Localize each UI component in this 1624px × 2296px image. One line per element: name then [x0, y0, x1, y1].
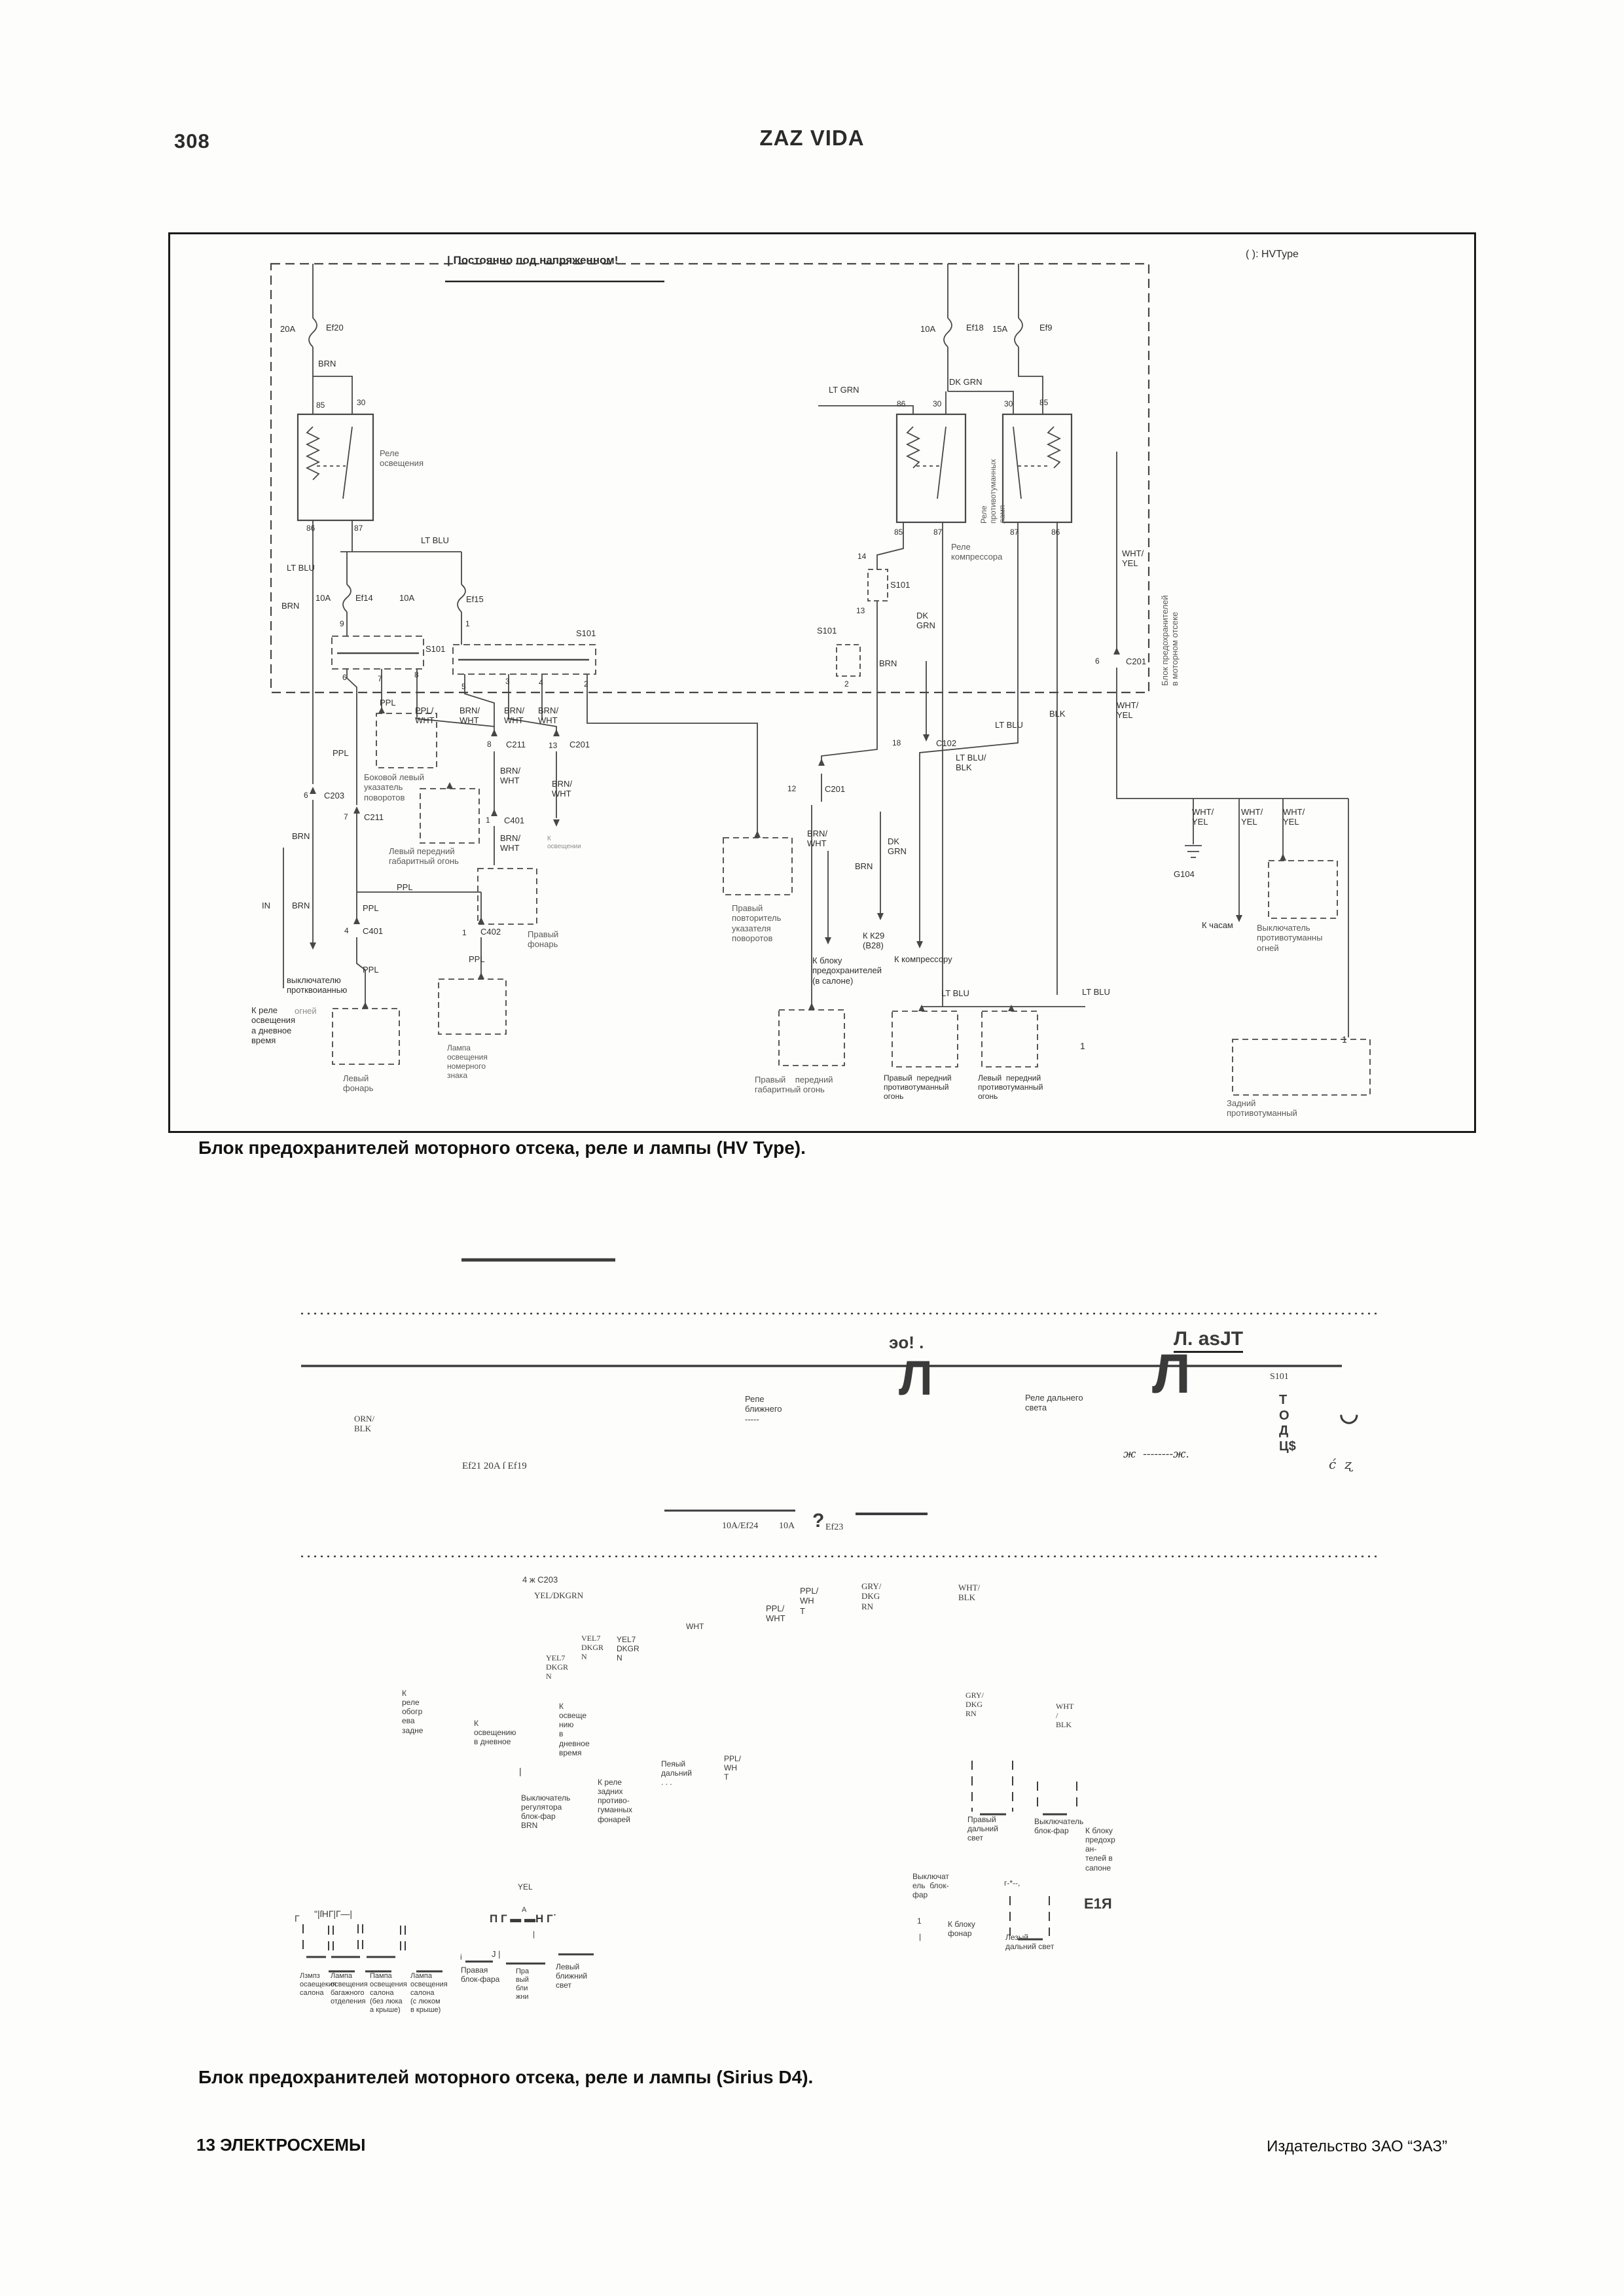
diagram1-label: 87 [933, 528, 942, 537]
diagram1-label: LT BLU [1082, 987, 1110, 997]
diagram1-label: 12 [787, 784, 796, 793]
diagram2-label: GRY/ DKG RN [965, 1691, 984, 1718]
diagram1-label: 7 [344, 812, 348, 821]
diagram2-label: YEL7 DKGR N [617, 1635, 640, 1662]
diagram1-label: К реле освещения а дневное время [251, 1005, 295, 1045]
diagram2-label: Выключат ель блок- фар [912, 1872, 949, 1899]
diagram1-label: LT BLU [995, 720, 1023, 730]
diagram1-label: выключателю протквоианнью [287, 975, 347, 996]
diagram2-label: 1 [917, 1916, 922, 1926]
diagram1-label: 30 [357, 398, 365, 407]
diagram1-label: 1 [1342, 1034, 1347, 1045]
diagram1-label: DK GRN [916, 611, 935, 631]
diagram1-label: 86 [306, 524, 315, 533]
diagram2-label: К реле задних противо- гуманных фонарей [598, 1778, 632, 1824]
diagram2-label: П Г ▬ ▬Н Г˙ [490, 1912, 556, 1926]
diagram2-label: WHT/ BLK [958, 1583, 980, 1603]
diagram1-label: C203 [324, 791, 344, 800]
diagram2-label: Л [1152, 1342, 1191, 1407]
diagram1-label: Ef20 [326, 323, 344, 332]
diagram1-label: 1 [486, 816, 490, 825]
footer-section: 13 ЭЛЕКТРОСХЕМЫ [196, 2135, 365, 2155]
diagram1-label: S101 [817, 626, 837, 636]
diagram1-label: 6 [1095, 656, 1100, 666]
diagram1-label: 3 [505, 677, 510, 686]
diagram1-label: WHT/ YEL [1241, 807, 1263, 827]
diagram2-label: 10A/Ef24 [722, 1521, 758, 1532]
diagram1-label: Выключатель противотуманны огней [1257, 923, 1322, 953]
diagram1-label: C401 [504, 816, 524, 825]
diagram1-label: Ef15 [466, 594, 484, 604]
diagram1-label: 1 [1080, 1041, 1085, 1052]
diagram2-label: К блоку фонар [948, 1920, 975, 1938]
diagram1-label: К компрессору [894, 954, 952, 964]
diagram1-label: 8 [414, 670, 419, 679]
diagram1-label: 85 [316, 401, 325, 410]
diagram1-label: BRN/ WHT [504, 706, 524, 726]
diagram1-label: BRN [855, 861, 873, 871]
diagram1-label: 4 [344, 926, 349, 935]
diagram2-label: Т О Д Ц$ [1279, 1393, 1296, 1454]
diagram1-label: 20A [280, 324, 295, 334]
diagram1-label: C211 [364, 812, 384, 822]
diagram1-label: C201 [569, 740, 590, 749]
diagram1-label: Правый передний противотуманный огонь [884, 1073, 952, 1101]
diagram1-label: Реле компрессора [951, 542, 1002, 562]
diagram2-label: Левый ближний свет [556, 1962, 587, 1990]
diagram1-label: LT GRN [829, 385, 859, 395]
diagram2-label: GRY/ DKG RN [861, 1581, 881, 1611]
diagram1-label: C102 [936, 738, 956, 748]
diagram1-label: 2 [584, 679, 588, 689]
diagram1-label: BRN/ WHT [538, 706, 558, 726]
diagram1-label: BLK [1049, 709, 1066, 719]
diagram1-label: C402 [480, 927, 501, 937]
diagram2-label: ORN/ BLK [354, 1414, 374, 1434]
diagram1-label: 13 [549, 741, 557, 750]
diagram1-label: Лампа освещения номерного знака [447, 1043, 488, 1081]
diagram2-label: Правая блок-фара [461, 1965, 499, 1984]
diagram2-label: WHT / BLK [1056, 1702, 1074, 1729]
diagram2-label: Реле дальнего света [1025, 1393, 1083, 1413]
diagram2-label: К блоку предохр ан- телей в сапоне [1085, 1826, 1115, 1873]
diagram1-label: 30 [933, 399, 941, 408]
diagram1-label: Боковой левый указатель поворотов [364, 772, 424, 802]
footer-publisher: Издательство ЗАО “ЗАЗ” [1267, 2138, 1447, 2156]
diagram2-label: PPL/ WHT [766, 1604, 785, 1624]
diagram1-label: 30 [1004, 399, 1013, 408]
diagram1-caption: Блок предохранителей моторного отсека, р… [198, 1138, 806, 1158]
diagram2-label: VEL7 DKGR N [581, 1634, 604, 1661]
diagram1-label: DK GRN [949, 377, 983, 387]
diagram2-label: PPL/ WH Т [800, 1586, 818, 1616]
diagram2-label: Лампа освещения багажного отделения [331, 1972, 368, 2006]
diagram1-label: DK GRN [888, 836, 907, 857]
diagram2-label: S101 [1270, 1372, 1289, 1383]
diagram1-label: Ef18 [966, 323, 984, 332]
diagram2-label: Пампа освещения салона (без люка а крыше… [370, 1972, 407, 2015]
diagram2-label: г-*--, [1004, 1878, 1020, 1888]
diagram1-label: 86 [1051, 528, 1060, 537]
diagram2-label: ? [812, 1509, 824, 1532]
diagram1-label: PPL [333, 748, 349, 758]
diagram1-label: 10A [920, 324, 935, 334]
diagram2-label: Выключатель регулятора блок-фар BRN [521, 1793, 570, 1831]
diagram2-label: YEL7 DKGR N [546, 1653, 568, 1681]
diagram1-label: Ef14 [355, 593, 373, 603]
diagram1-label: Правый передний габаритный огонь [755, 1075, 833, 1095]
diagram1-label: 1 [462, 928, 467, 937]
diagram2-label: YEL [518, 1882, 533, 1892]
diagram1-label: BRN [318, 359, 336, 368]
diagram2-label: ◡ [1339, 1401, 1359, 1427]
diagram1-label: BRN [292, 901, 310, 910]
diagram1-label: 1 [465, 619, 470, 628]
diagram1-label: 13 [856, 606, 865, 615]
diagram2-label: ć ʐ [1329, 1457, 1352, 1473]
diagram2-label: К освещению в дневное [474, 1719, 516, 1746]
diagram2-label: | [519, 1766, 522, 1777]
diagram1-label: 85 [1039, 398, 1048, 407]
diagram2-label: Выключатель блок-фар [1034, 1817, 1083, 1835]
diagram1-label: WHT/ YEL [1122, 548, 1144, 569]
diagram1-label: К блоку предохранителей (в салоне) [812, 956, 882, 986]
diagram1-label: 18 [892, 738, 901, 747]
diagram1-label: К часам [1202, 920, 1233, 930]
diagram1-label: BRN/ WHT [552, 779, 572, 799]
diagram1-label: PPL [397, 882, 413, 892]
diagram2-label: Репе ближнего ----- [745, 1394, 782, 1424]
diagram1-label: 9 [340, 619, 344, 628]
diagram1-label: 10A [399, 593, 414, 603]
diagram1-label: G104 [1174, 869, 1195, 879]
diagram1-label: C401 [363, 926, 383, 936]
diagram2-label: Лезый дальний свет [1005, 1933, 1054, 1951]
diagram2-label: К реле обогр ева задне [402, 1689, 423, 1735]
diagram1-label: Реле противотуманных ламп [979, 459, 1007, 524]
diagram1-label: огней [295, 1006, 317, 1016]
diagram2-label: 4 ж С203 [522, 1575, 558, 1585]
diagram1-label: LT BLU [287, 563, 315, 573]
diagram1-label: 6 [342, 673, 347, 682]
diagram1-label: 5 [461, 682, 466, 691]
diagram1-label: PPL [363, 965, 379, 975]
diagram1-label: C201 [825, 784, 845, 794]
diagram1-label: BRN/ WHT [460, 706, 480, 726]
diagram1-label: Правый фонарь [528, 929, 558, 950]
diagram1-label: PPL [469, 954, 485, 964]
diagram1-label: WHT/ YEL [1117, 700, 1138, 721]
diagram2-label: Пеяый дальний . . . [661, 1759, 692, 1787]
diagram1-label: 7 [378, 674, 382, 683]
diagram1-label: Левый передний противотуманный огонь [978, 1073, 1043, 1101]
diagram1-label: 86 [897, 399, 905, 408]
diagram2-label: Ef23 [825, 1522, 843, 1534]
diagram1-label: Реле освещения [380, 448, 424, 469]
diagram2-label: PPL/ WH Т [724, 1754, 741, 1782]
diagram1-label: BRN [292, 831, 310, 841]
diagram1-label: 2 [844, 679, 849, 689]
diagram1-label: 8 [487, 740, 492, 749]
diagram1-label: BRN/ WHT [500, 833, 520, 853]
diagram1-label: BRN/ WHT [500, 766, 520, 786]
diagram2-label: YEL/DKGRN [534, 1590, 583, 1600]
diagram2-label: WHT [686, 1622, 704, 1631]
diagram1-label: Задний противотуманный [1227, 1098, 1297, 1119]
diagram1-label: S101 [425, 644, 445, 654]
diagram1-label: WHT/ YEL [1283, 807, 1305, 827]
diagram1-label: PPL [380, 698, 396, 708]
diagram1-label: Левый фонарь [343, 1073, 373, 1094]
diagram2-label: Лампа освещения салона (с люком в крыше) [410, 1972, 448, 2015]
diagram2-label: Г [295, 1913, 300, 1924]
diagram1-label: S101 [890, 580, 910, 590]
diagram1-label: WHT/ YEL [1192, 807, 1214, 827]
diagram2-label: Ef21 20A ſ Ef19 [462, 1461, 527, 1473]
diagram1-label: BRN [879, 658, 897, 668]
diagram1-label: LT BLU [941, 988, 969, 998]
diagram2-label: К освеще нию в дневное время [559, 1702, 590, 1757]
diagram1-label: Ef9 [1039, 323, 1053, 332]
diagram2-label: Л [899, 1350, 933, 1407]
diagram2-label: 10A [779, 1521, 795, 1532]
diagram1-label: LT BLU [421, 535, 449, 545]
diagram1-label: 10A [316, 593, 331, 603]
diagram1-frame [168, 232, 1476, 1133]
diagram1-label: Левый передний габаритный огонь [389, 846, 459, 867]
diagram1-label: К К29 (В28) [863, 931, 884, 951]
diagram1-label: Блок предохранителей в моторном отсеке [1160, 595, 1180, 686]
diagram1-label: S101 [576, 628, 596, 638]
manual-page: 308 ZAZ VIDA [0, 0, 1624, 2296]
diagram2-label: Пра вый бли жни [516, 1967, 529, 2001]
diagram1-label: C201 [1126, 656, 1146, 666]
diagram1-label: 85 [894, 528, 903, 537]
diagram1-label: Правый повторитель указателя поворотов [732, 903, 781, 943]
diagram1-label: PPL [363, 903, 379, 913]
diagram1-label: | Постоянно под напряженном! [447, 254, 618, 267]
diagram2-label: | [533, 1929, 535, 1939]
diagram2-label: J | [492, 1949, 501, 1959]
diagram1-label: IN [262, 901, 270, 910]
diagram1-label: ( ): HVType [1246, 249, 1299, 261]
diagram1-label: 87 [354, 524, 363, 533]
diagram1-label: PPL/ WHT [415, 706, 435, 726]
diagram2-label: i [460, 1952, 462, 1962]
diagram1-label: 15A [992, 324, 1007, 334]
diagram1-label: BRN [281, 601, 299, 611]
diagram2-label: Правый дальний свет [967, 1815, 998, 1842]
diagram1-label: C211 [506, 740, 526, 749]
diagram1-label: BRN/ WHT [807, 829, 827, 849]
diagram1-label: LT BLU/ BLK [956, 753, 986, 773]
diagram2-label: ж --------ж. [1123, 1448, 1189, 1461]
diagram2-label: | [919, 1932, 921, 1941]
diagram1-label: 4 [539, 678, 543, 687]
diagram2-label: Е1Я [1084, 1895, 1112, 1912]
diagram2-caption: Блок предохранителей моторного отсека, р… [198, 2067, 813, 2088]
diagram1-label: 87 [1010, 528, 1019, 537]
diagram1-label: К освещении [547, 835, 581, 851]
diagram2-label: "|ſНГ|Г—| [314, 1909, 352, 1920]
diagram1-label: 6 [304, 791, 308, 800]
diagram1-label: 14 [857, 552, 866, 561]
